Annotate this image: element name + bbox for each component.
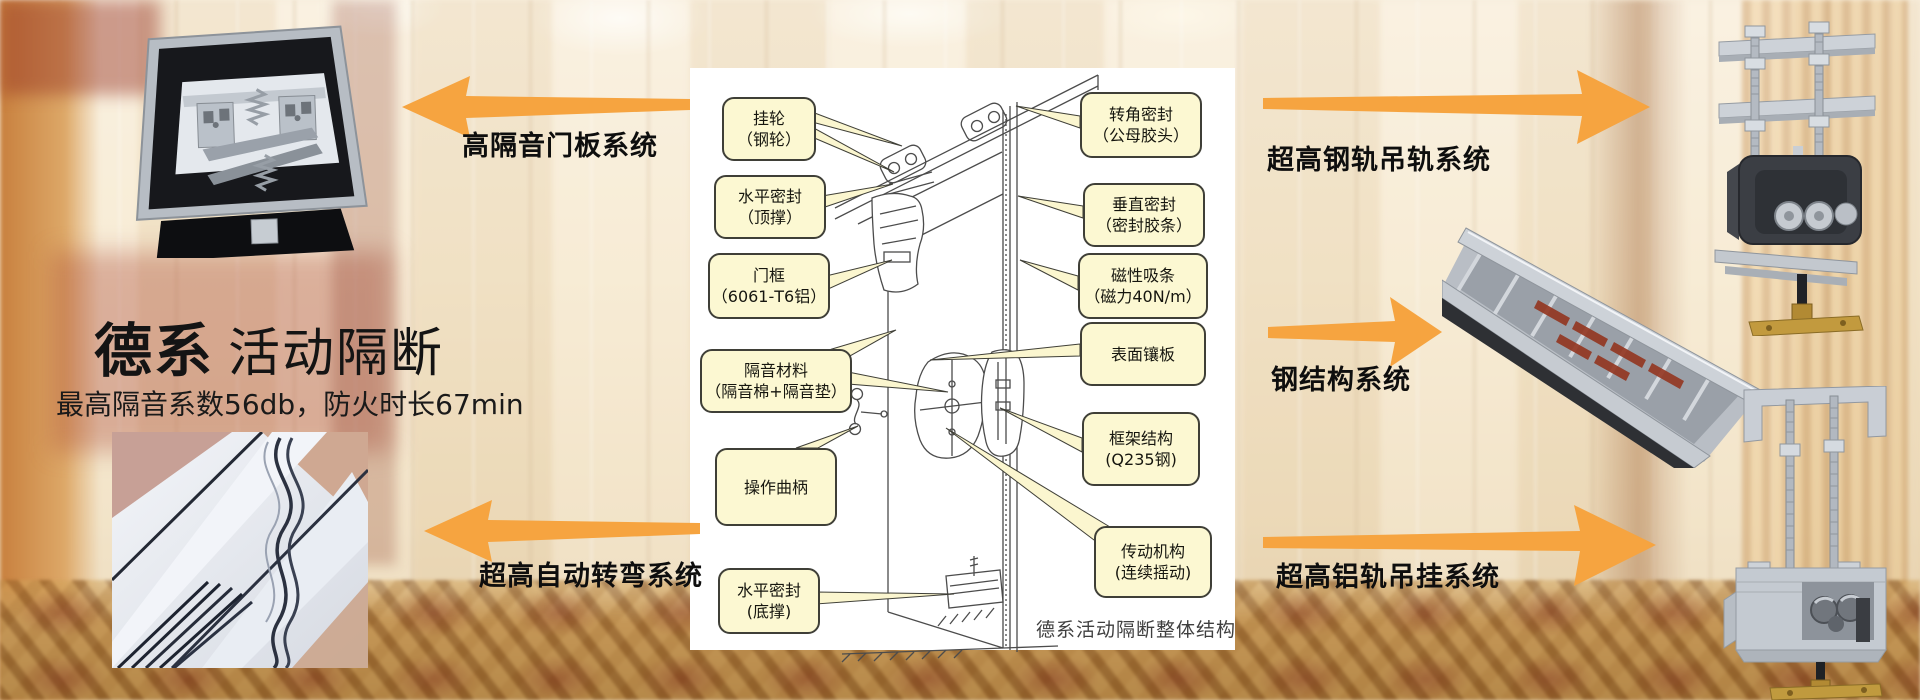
callout-transmission: 传动机构 (连续摇动) (1094, 526, 1212, 598)
page-subtitle: 最高隔音系数56db，防火时长67min (56, 383, 524, 423)
callout-line1: 磁性吸条 (1111, 265, 1175, 286)
callout-corner-seal: 转角密封 （公母胶头） (1080, 92, 1202, 158)
callout-line2: （6061-T6铝） (712, 286, 826, 307)
callout-line1: 垂直密封 (1112, 194, 1176, 215)
callout-horizontal-seal-bottom: 水平密封 (底撑) (718, 568, 820, 634)
diagram-caption: 德系活动隔断整体结构 (1036, 615, 1236, 642)
callout-frame-structure: 框架结构 (Q235钢) (1082, 412, 1200, 486)
callout-operating-crank: 操作曲柄 (715, 448, 837, 526)
callout-magnetic-strip: 磁性吸条 （磁力40N/m） (1078, 253, 1208, 319)
callout-vertical-seal: 垂直密封 （密封胶条） (1083, 183, 1205, 247)
callout-line1: 挂轮 (753, 108, 785, 129)
callout-line2: (底撑) (747, 601, 792, 622)
page-title-brand: 德系 (94, 304, 214, 388)
callout-horizontal-seal-top: 水平密封 （顶撑） (714, 175, 826, 239)
callout-line2: (连续摇动) (1115, 562, 1192, 583)
callout-line1: 隔音材料 (744, 360, 808, 381)
callout-line2: （密封胶条） (1096, 215, 1192, 236)
photo-door-panel-top-view (98, 6, 390, 258)
photo-aluminum-rail-hanger (1718, 386, 1908, 700)
label-aluminum-rail-system: 超高铝轨吊挂系统 (1276, 555, 1500, 594)
callout-acoustic-material: 隔音材料 （隔音棉+隔音垫） (700, 349, 852, 413)
callout-line2: （公母胶头） (1093, 125, 1189, 146)
callout-line1: 水平密封 (738, 186, 802, 207)
callout-line1: 框架结构 (1109, 428, 1173, 449)
callout-line2: （顶撑） (738, 207, 802, 228)
callout-line1: 转角密封 (1109, 104, 1173, 125)
label-steel-rail-system: 超高钢轨吊轨系统 (1267, 138, 1491, 177)
callout-line2: （磁力40N/m） (1084, 286, 1201, 307)
callout-line1: 表面镶板 (1111, 344, 1175, 365)
photo-curved-track (112, 432, 368, 668)
label-door-panel-system: 高隔音门板系统 (462, 124, 658, 163)
callout-door-frame: 门框 （6061-T6铝） (708, 253, 830, 319)
infographic-root: 挂轮 （钢轮） 水平密封 （顶撑） 门框 （6061-T6铝） 隔音材料 （隔音… (0, 0, 1920, 700)
label-steel-structure-system: 钢结构系统 (1271, 358, 1411, 397)
page-title: 德系 活动隔断 (94, 304, 444, 388)
callout-line2: （钢轮） (737, 129, 801, 150)
callout-hanging-wheel: 挂轮 （钢轮） (722, 97, 816, 161)
callout-line1: 传动机构 (1121, 541, 1185, 562)
callout-line1: 水平密封 (737, 580, 801, 601)
callout-line1: 操作曲柄 (744, 477, 808, 498)
photo-steel-structure (1442, 222, 1764, 468)
callout-line2: (Q235钢) (1105, 449, 1177, 470)
callout-surface-panel: 表面镶板 (1080, 322, 1206, 386)
callout-line1: 门框 (753, 265, 785, 286)
label-auto-turning-system: 超高自动转弯系统 (479, 554, 703, 593)
page-title-product: 活动隔断 (228, 311, 444, 386)
callout-line2: （隔音棉+隔音垫） (705, 381, 846, 402)
